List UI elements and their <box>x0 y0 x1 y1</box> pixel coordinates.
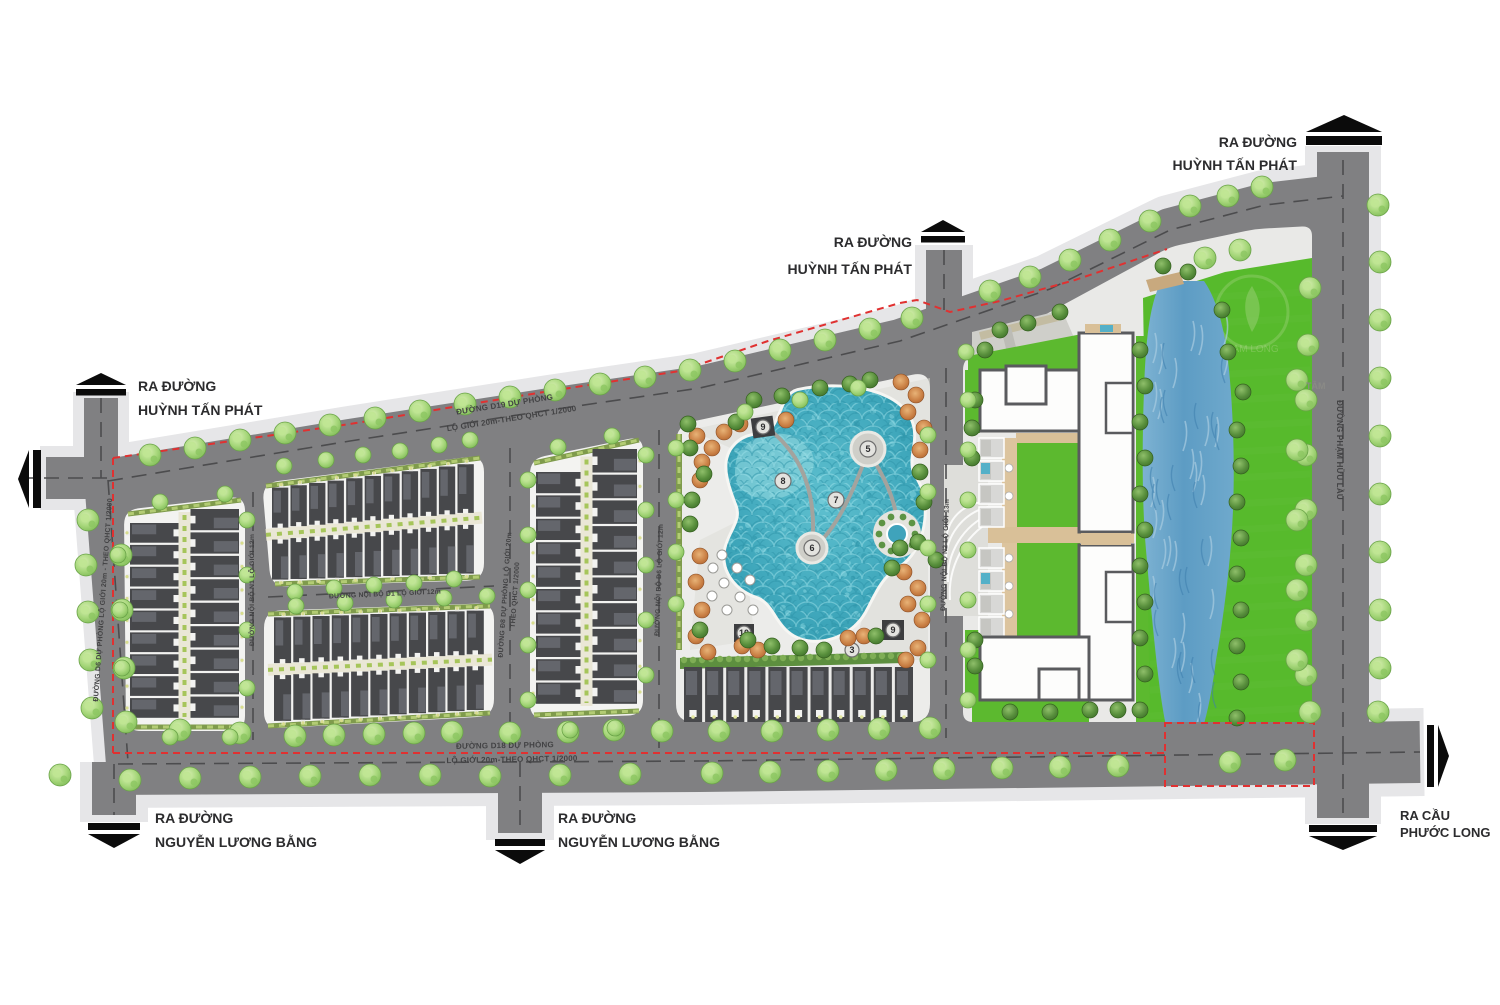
svg-text:RA ĐƯỜNG: RA ĐƯỜNG <box>558 809 636 826</box>
svg-text:RA ĐƯỜNG: RA ĐƯỜNG <box>1219 133 1297 150</box>
svg-text:8: 8 <box>780 476 785 486</box>
svg-text:ĐƯỜNG PHẠM HỮU LẦU: ĐƯỜNG PHẠM HỮU LẦU <box>1335 400 1345 500</box>
svg-text:NGUYỄN LƯƠNG BẰNG: NGUYỄN LƯƠNG BẰNG <box>155 833 317 850</box>
svg-text:ĐƯỜNG D18 DỰ PHÒNG: ĐƯỜNG D18 DỰ PHÒNG <box>456 740 554 751</box>
svg-text:RA ĐƯỜNG: RA ĐƯỜNG <box>138 377 216 394</box>
svg-text:TÂM: TÂM <box>1306 380 1326 391</box>
svg-text:ĐƯỜNG NỘI BỘ N1 LỘ GIỚI 12m: ĐƯỜNG NỘI BỘ N1 LỘ GIỚI 12m <box>247 534 256 646</box>
svg-text:HUỲNH TẤN PHÁT: HUỲNH TẤN PHÁT <box>788 260 913 277</box>
svg-text:HUỲNH TẤN PHÁT: HUỲNH TẤN PHÁT <box>1173 156 1298 173</box>
svg-text:RA ĐƯỜNG: RA ĐƯỜNG <box>155 809 233 826</box>
svg-text:5: 5 <box>865 444 870 454</box>
svg-text:6: 6 <box>809 543 814 553</box>
svg-text:NGUYỄN LƯƠNG BẰNG: NGUYỄN LƯƠNG BẰNG <box>558 833 720 850</box>
svg-text:PHƯỚC LONG: PHƯỚC LONG <box>1400 825 1491 840</box>
svg-text:7: 7 <box>833 495 838 505</box>
svg-text:HUỲNH TẤN PHÁT: HUỲNH TẤN PHÁT <box>138 401 263 418</box>
svg-text:3: 3 <box>849 645 854 655</box>
svg-text:9: 9 <box>760 422 765 432</box>
svg-text:RA ĐƯỜNG: RA ĐƯỜNG <box>834 233 912 250</box>
svg-text:9: 9 <box>890 625 895 635</box>
svg-text:RA CẦU: RA CẦU <box>1400 808 1450 823</box>
